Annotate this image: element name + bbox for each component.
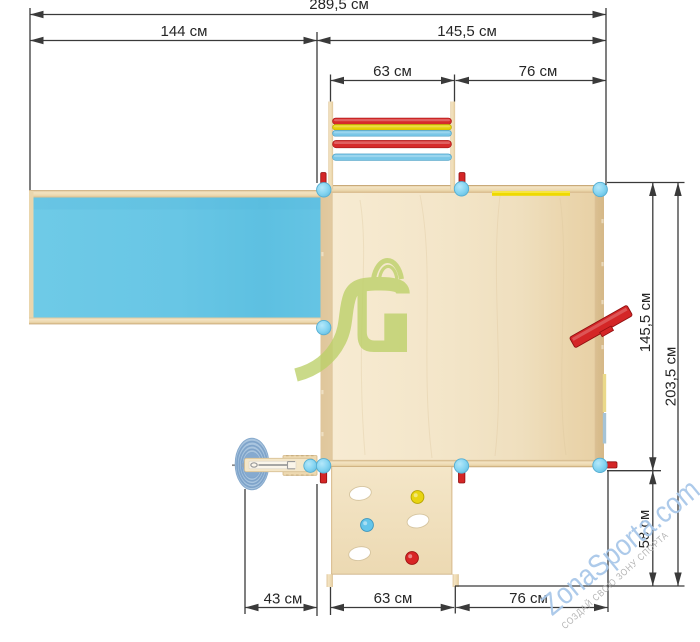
svg-text:144 см: 144 см (160, 23, 207, 40)
svg-text:ZonaSporta.com: ZonaSporta.com (535, 473, 700, 622)
svg-text:63 см: 63 см (373, 63, 412, 80)
svg-text:145,5 см: 145,5 см (637, 293, 654, 353)
svg-text:76 см: 76 см (519, 63, 558, 80)
svg-text:145,5 см: 145,5 см (437, 23, 497, 40)
svg-text:203,5 см: 203,5 см (663, 347, 680, 407)
svg-text:289,5 см: 289,5 см (309, 0, 369, 13)
svg-text:43 см: 43 см (264, 591, 303, 608)
svg-text:63 см: 63 см (374, 590, 413, 607)
